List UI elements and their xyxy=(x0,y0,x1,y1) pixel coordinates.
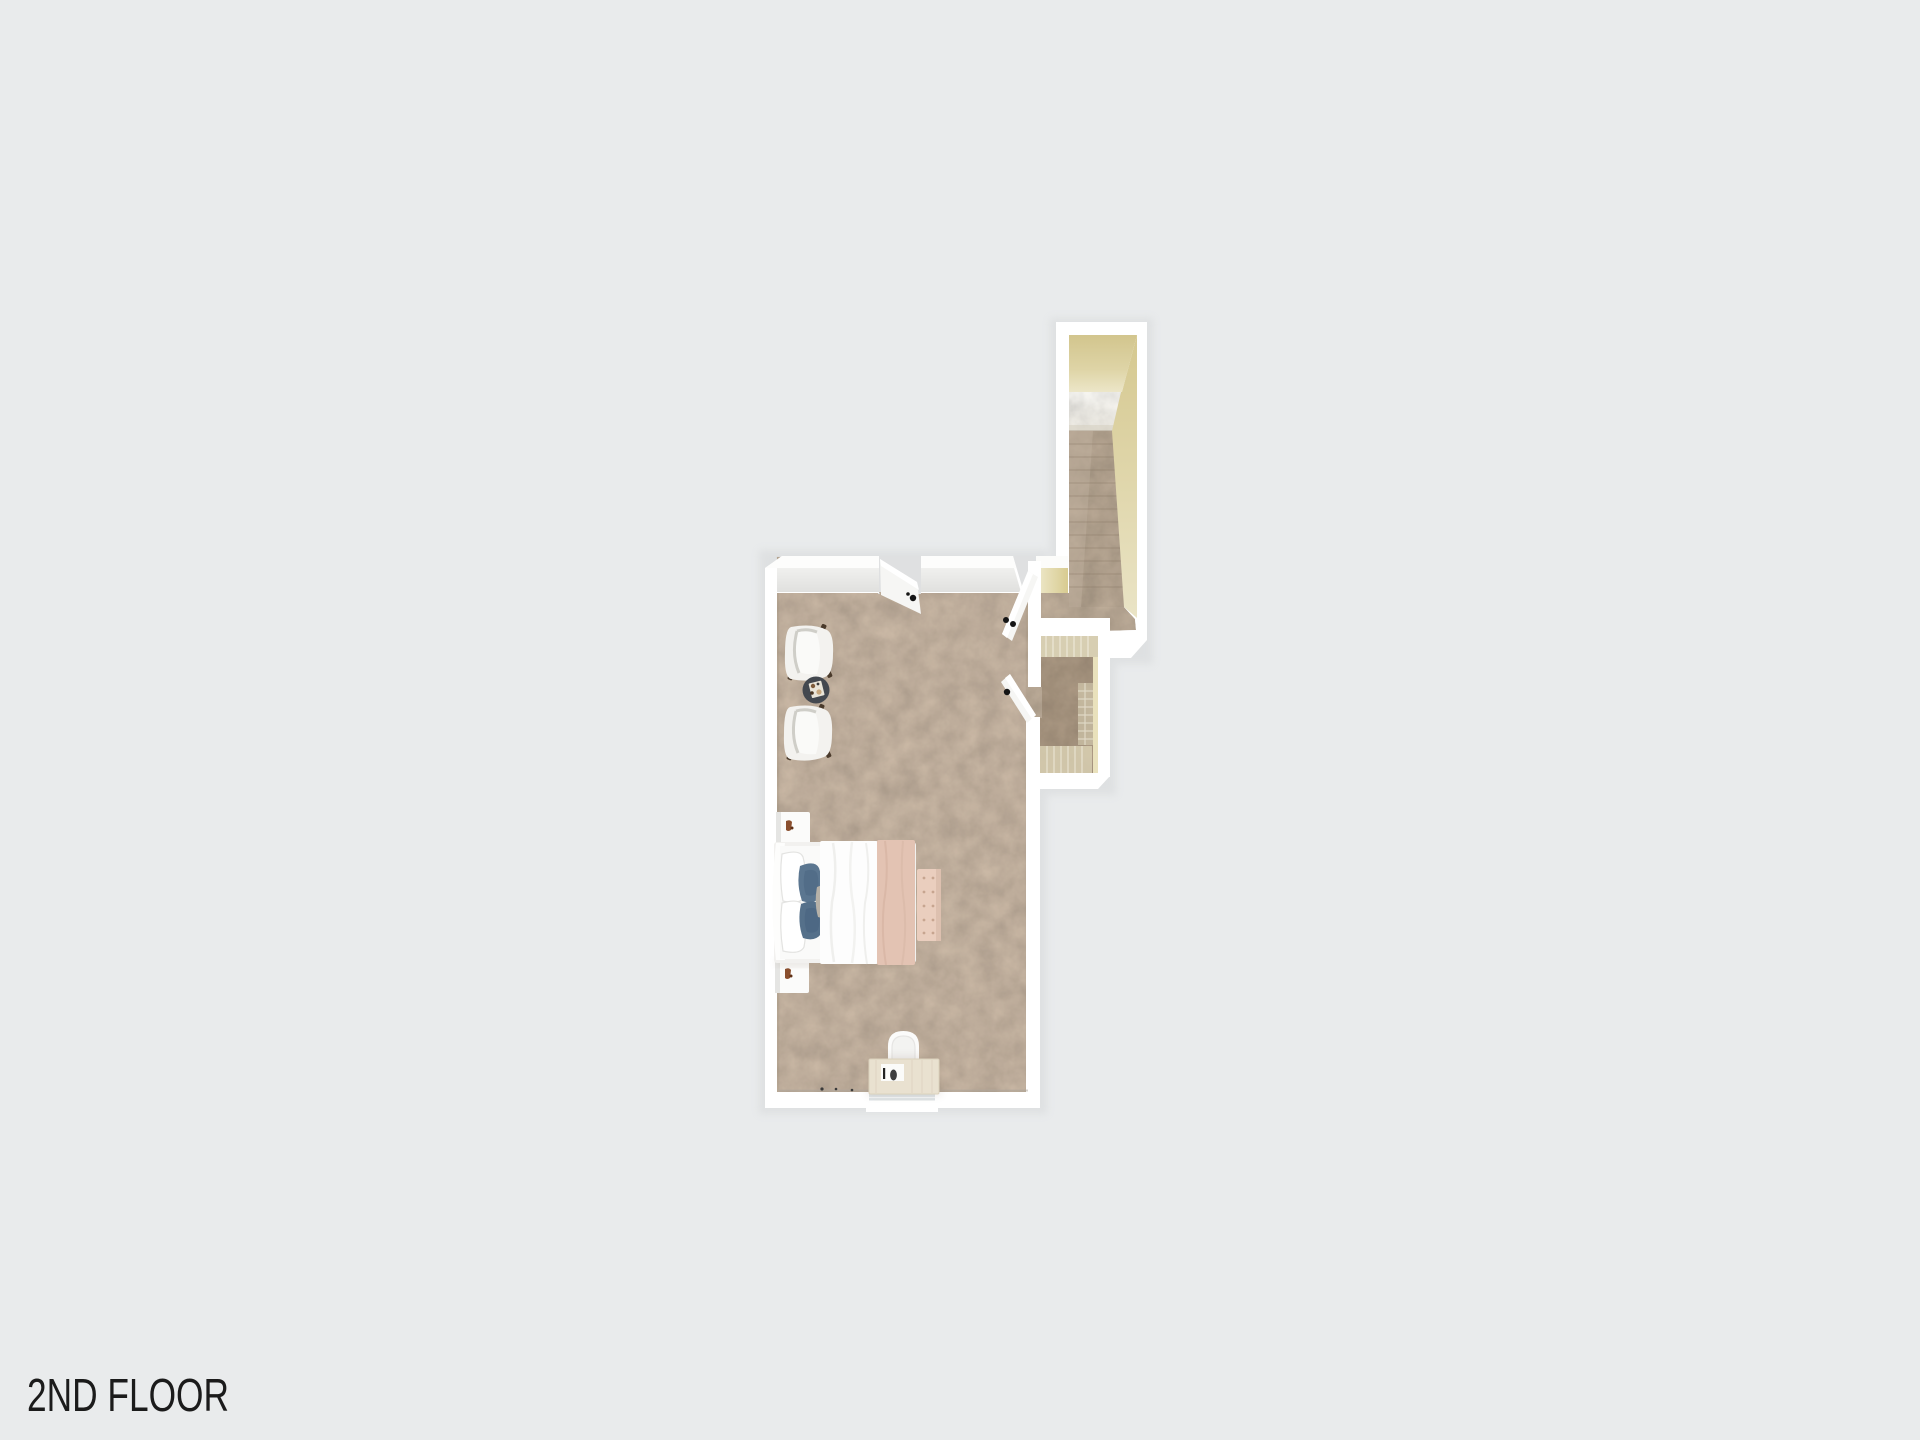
svg-text:2ND FLOOR: 2ND FLOOR xyxy=(27,1369,229,1421)
